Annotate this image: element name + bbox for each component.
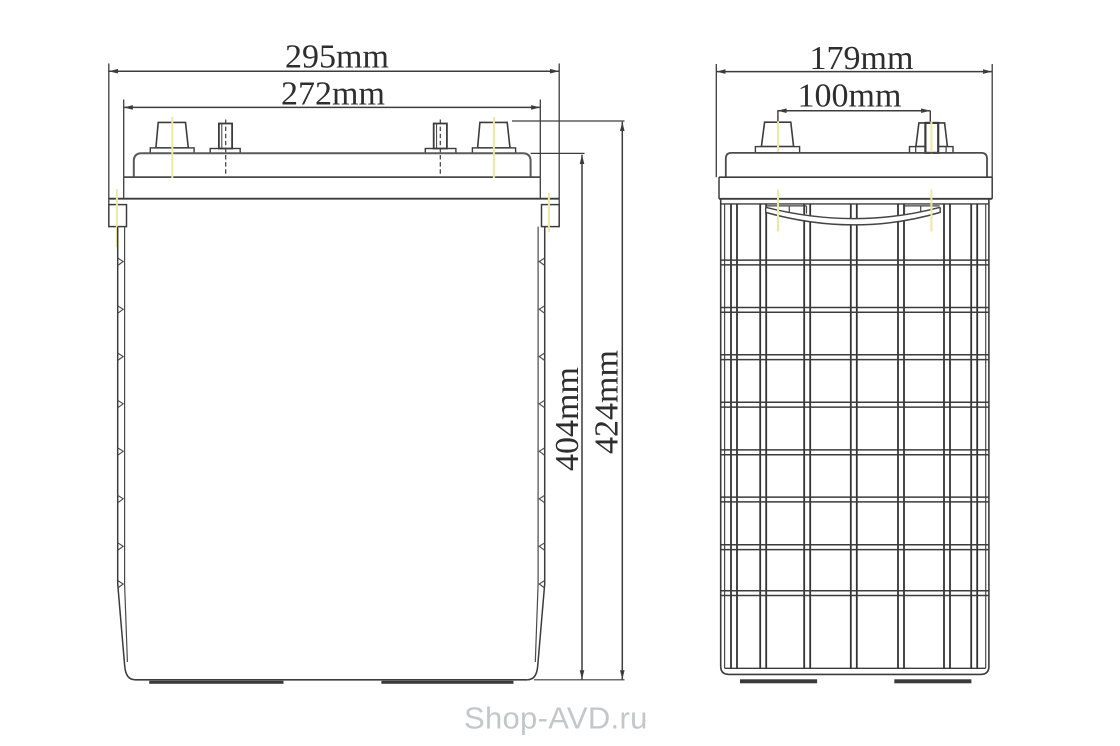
svg-text:424mm: 424mm	[589, 350, 626, 454]
svg-text:Shop-AVD.ru: Shop-AVD.ru	[464, 701, 648, 736]
svg-text:295mm: 295mm	[285, 39, 389, 76]
svg-text:100mm: 100mm	[798, 78, 902, 115]
svg-text:404mm: 404mm	[549, 367, 586, 471]
